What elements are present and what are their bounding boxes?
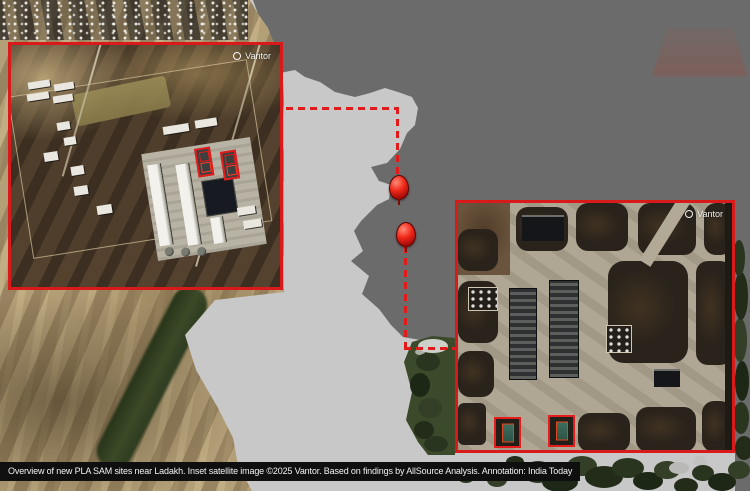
sam-launcher xyxy=(503,424,513,441)
equipment-yard xyxy=(606,325,632,353)
soil-block xyxy=(576,203,628,251)
callout-leader-line xyxy=(286,107,398,110)
sam-launcher-annotation xyxy=(548,415,575,447)
callout-leader-line xyxy=(404,246,407,348)
perimeter-strip xyxy=(725,203,732,450)
faded-channel-watermark xyxy=(652,27,748,77)
caption-bar: Overview of new PLA SAM sites near Ladak… xyxy=(0,462,580,481)
callout-leader-line xyxy=(396,107,399,175)
building xyxy=(654,369,680,387)
annotated-satellite-map: Vantor xyxy=(0,0,750,491)
sam-launcher-annotation xyxy=(494,417,521,448)
border-terrain-patch xyxy=(404,336,455,455)
equipment-yard xyxy=(468,287,498,311)
storage-tank xyxy=(180,247,190,257)
vehicle-pad xyxy=(458,403,486,445)
inset-right-imagery xyxy=(458,203,732,450)
vantor-logo-icon xyxy=(233,52,241,60)
building xyxy=(237,205,256,216)
sam-launch-pad-annotation xyxy=(220,149,240,180)
inset-left-credit: Vantor xyxy=(233,51,271,61)
sam-site-marker-1[interactable] xyxy=(389,175,409,200)
warehouse xyxy=(175,163,201,246)
long-shelter-building xyxy=(550,281,578,377)
vantor-logo-icon xyxy=(685,210,693,218)
soil-block xyxy=(458,351,494,397)
inset-sam-site-right[interactable]: Vantor xyxy=(455,200,735,453)
sam-launcher xyxy=(557,423,567,440)
credit-label: Vantor xyxy=(245,51,271,61)
soil-block xyxy=(636,407,696,450)
callout-leader-line xyxy=(404,347,455,350)
building xyxy=(243,218,262,229)
storage-tank xyxy=(164,246,174,256)
garrison-building xyxy=(201,176,238,217)
sam-site-marker-2[interactable] xyxy=(396,222,416,247)
inset-left-imagery xyxy=(11,45,280,287)
river-valley xyxy=(91,281,214,476)
warehouse xyxy=(210,216,226,244)
inset-right-credit: Vantor xyxy=(685,209,723,219)
long-shelter-building xyxy=(510,289,536,379)
garrison-building xyxy=(522,215,564,241)
sam-launch-pad-annotation xyxy=(194,146,214,177)
storage-apron xyxy=(141,137,267,261)
caption-text: Overview of new PLA SAM sites near Ladak… xyxy=(8,466,572,476)
soil-block xyxy=(578,413,630,450)
snowy-ridge xyxy=(0,0,248,40)
soil-block xyxy=(458,229,498,271)
credit-label: Vantor xyxy=(697,209,723,219)
inset-sam-site-left[interactable]: Vantor xyxy=(8,42,283,290)
